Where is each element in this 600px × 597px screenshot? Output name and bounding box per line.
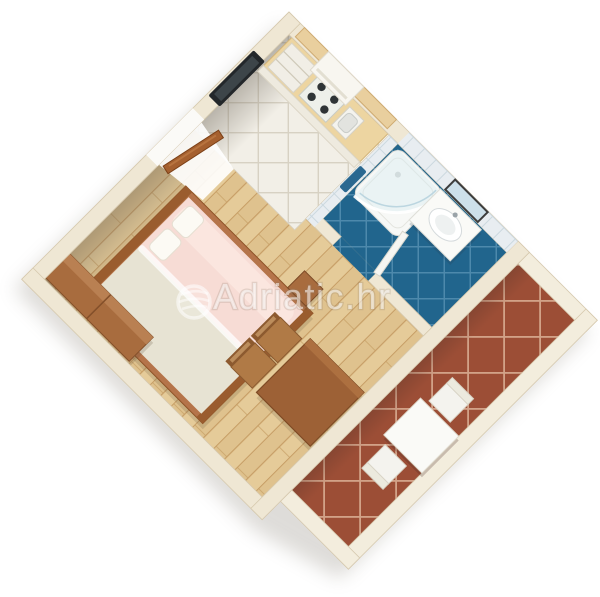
floorplan-canvas: Adriatic.hr bbox=[0, 0, 600, 597]
floorplan-3d-render: Adriatic.hr bbox=[0, 0, 600, 597]
watermark-text: Adriatic.hr bbox=[213, 276, 392, 317]
